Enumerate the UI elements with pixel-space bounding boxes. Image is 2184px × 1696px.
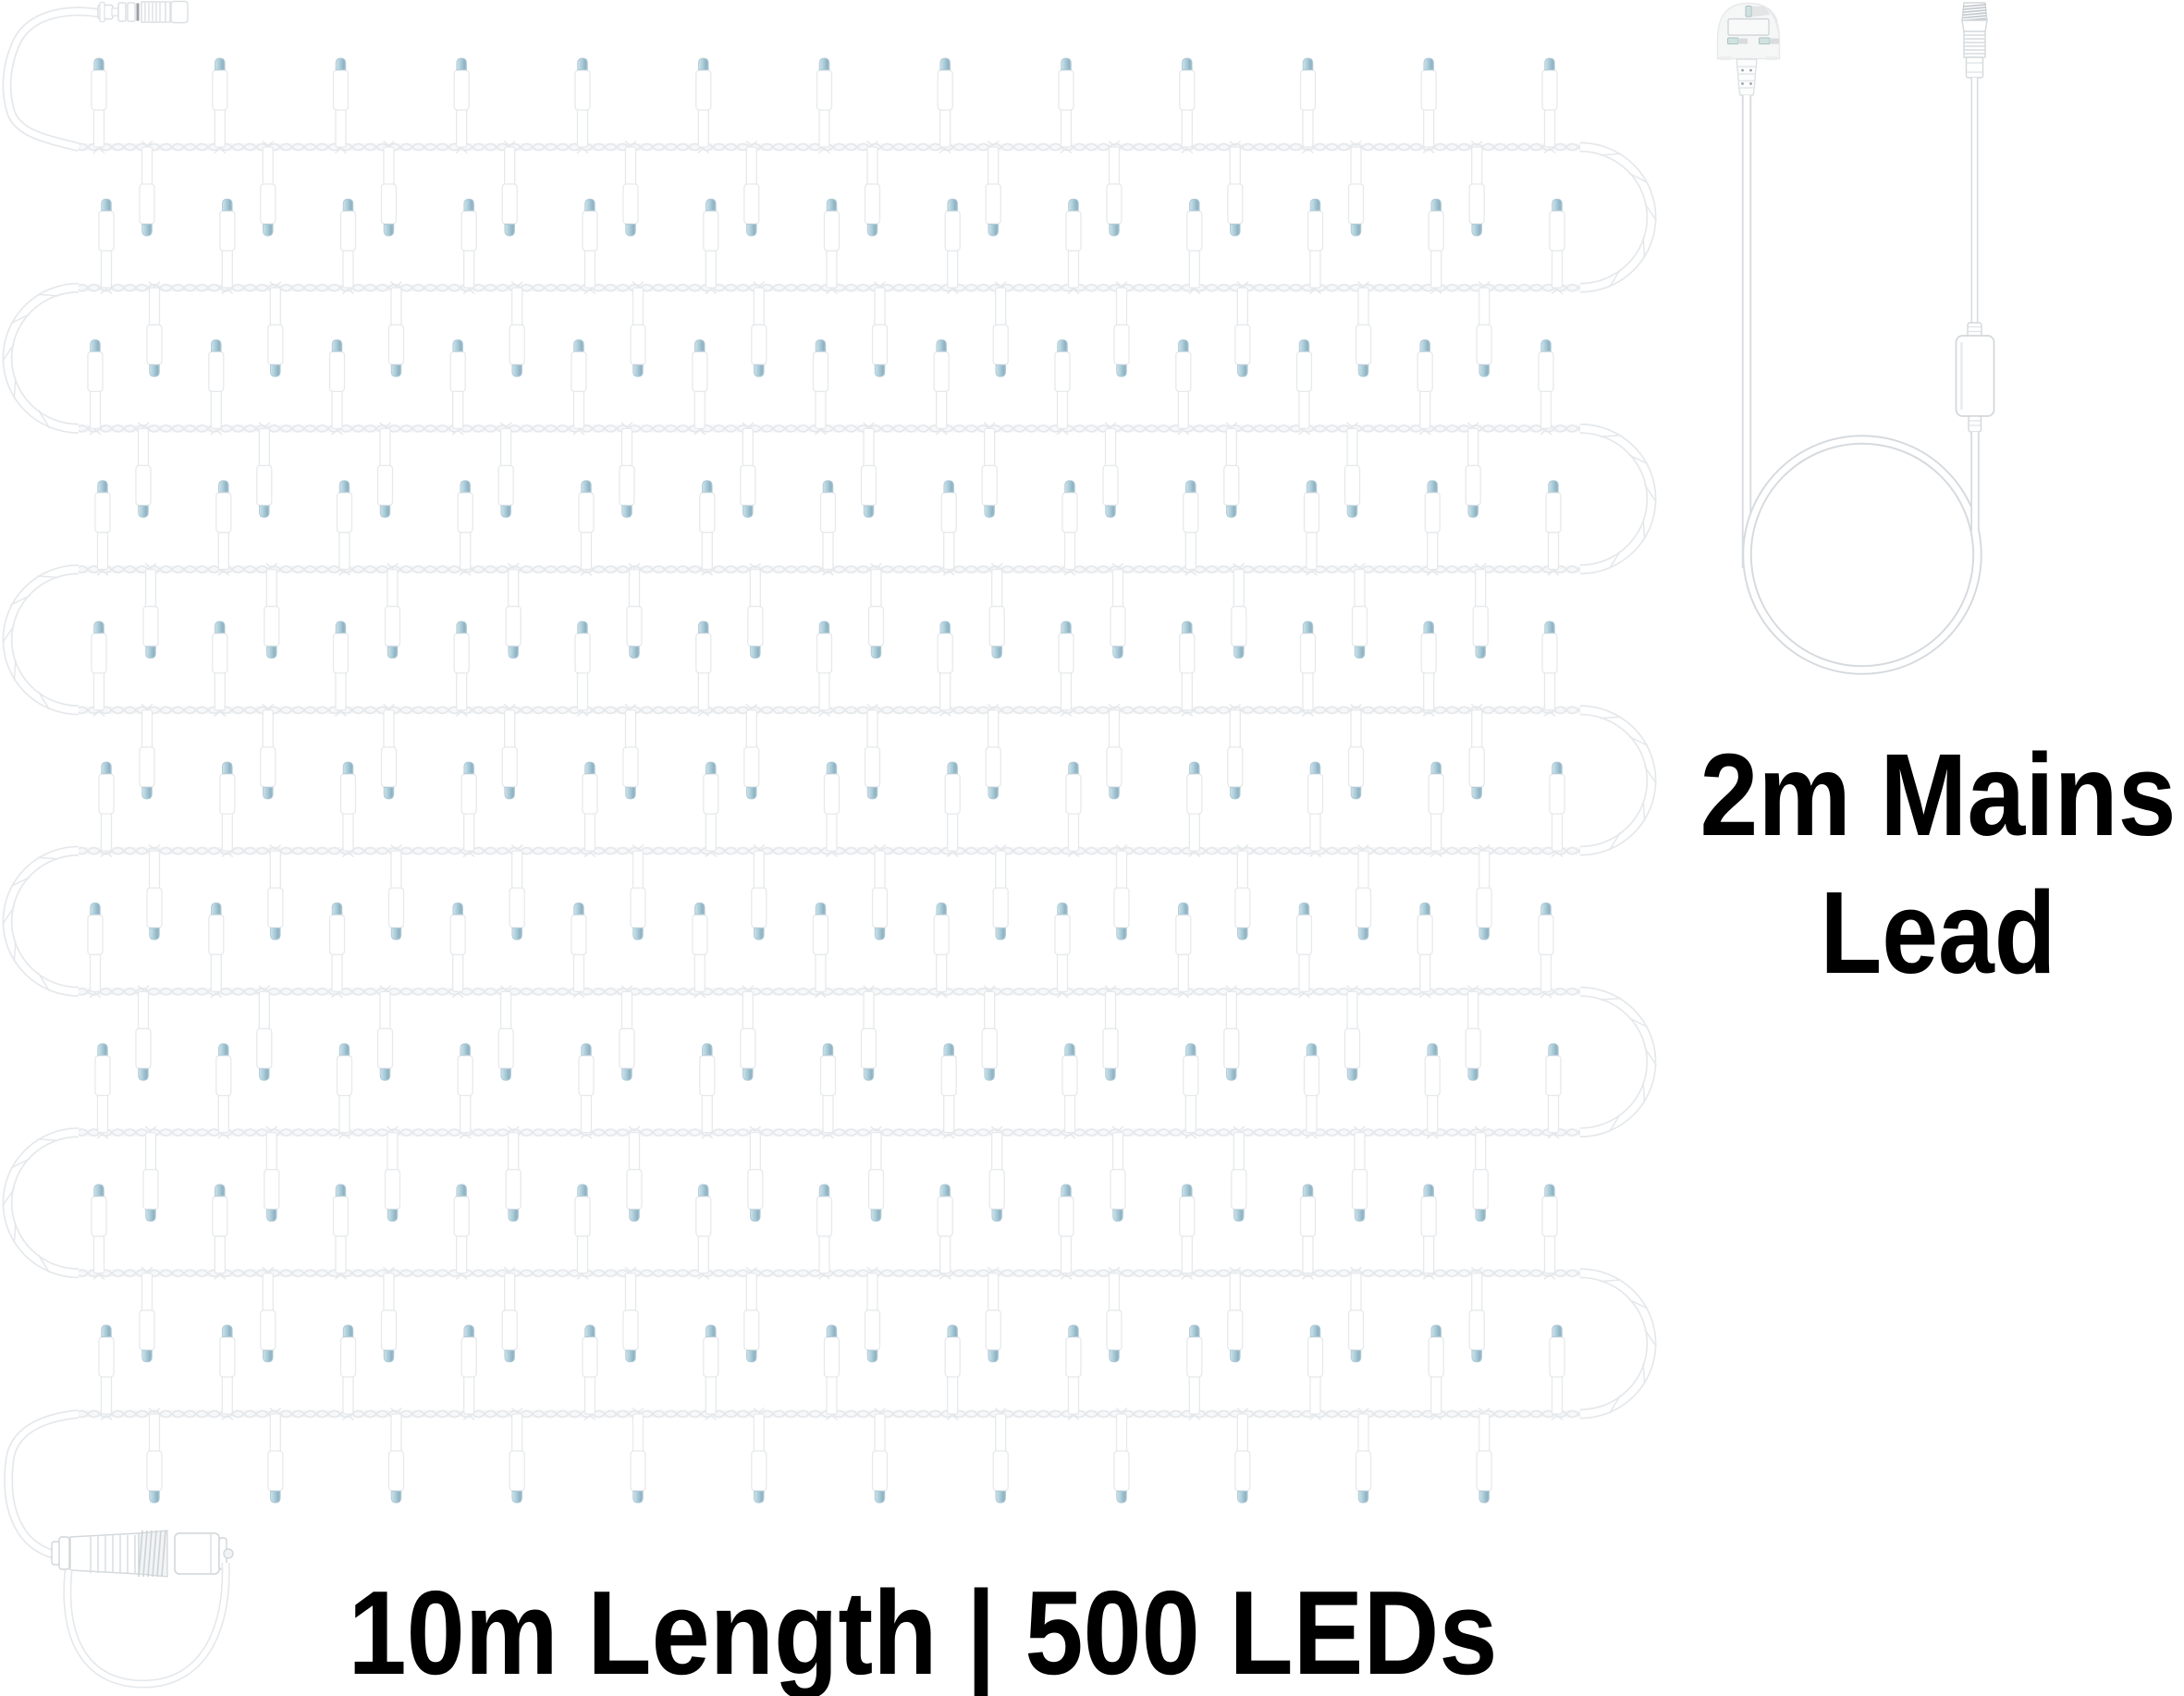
svg-text:Lead: Lead: [1821, 867, 2056, 998]
svg-text:2m Mains: 2m Mains: [1700, 730, 2177, 860]
svg-text:10m Length | 500 LEDs: 10m Length | 500 LEDs: [349, 1567, 1498, 1696]
